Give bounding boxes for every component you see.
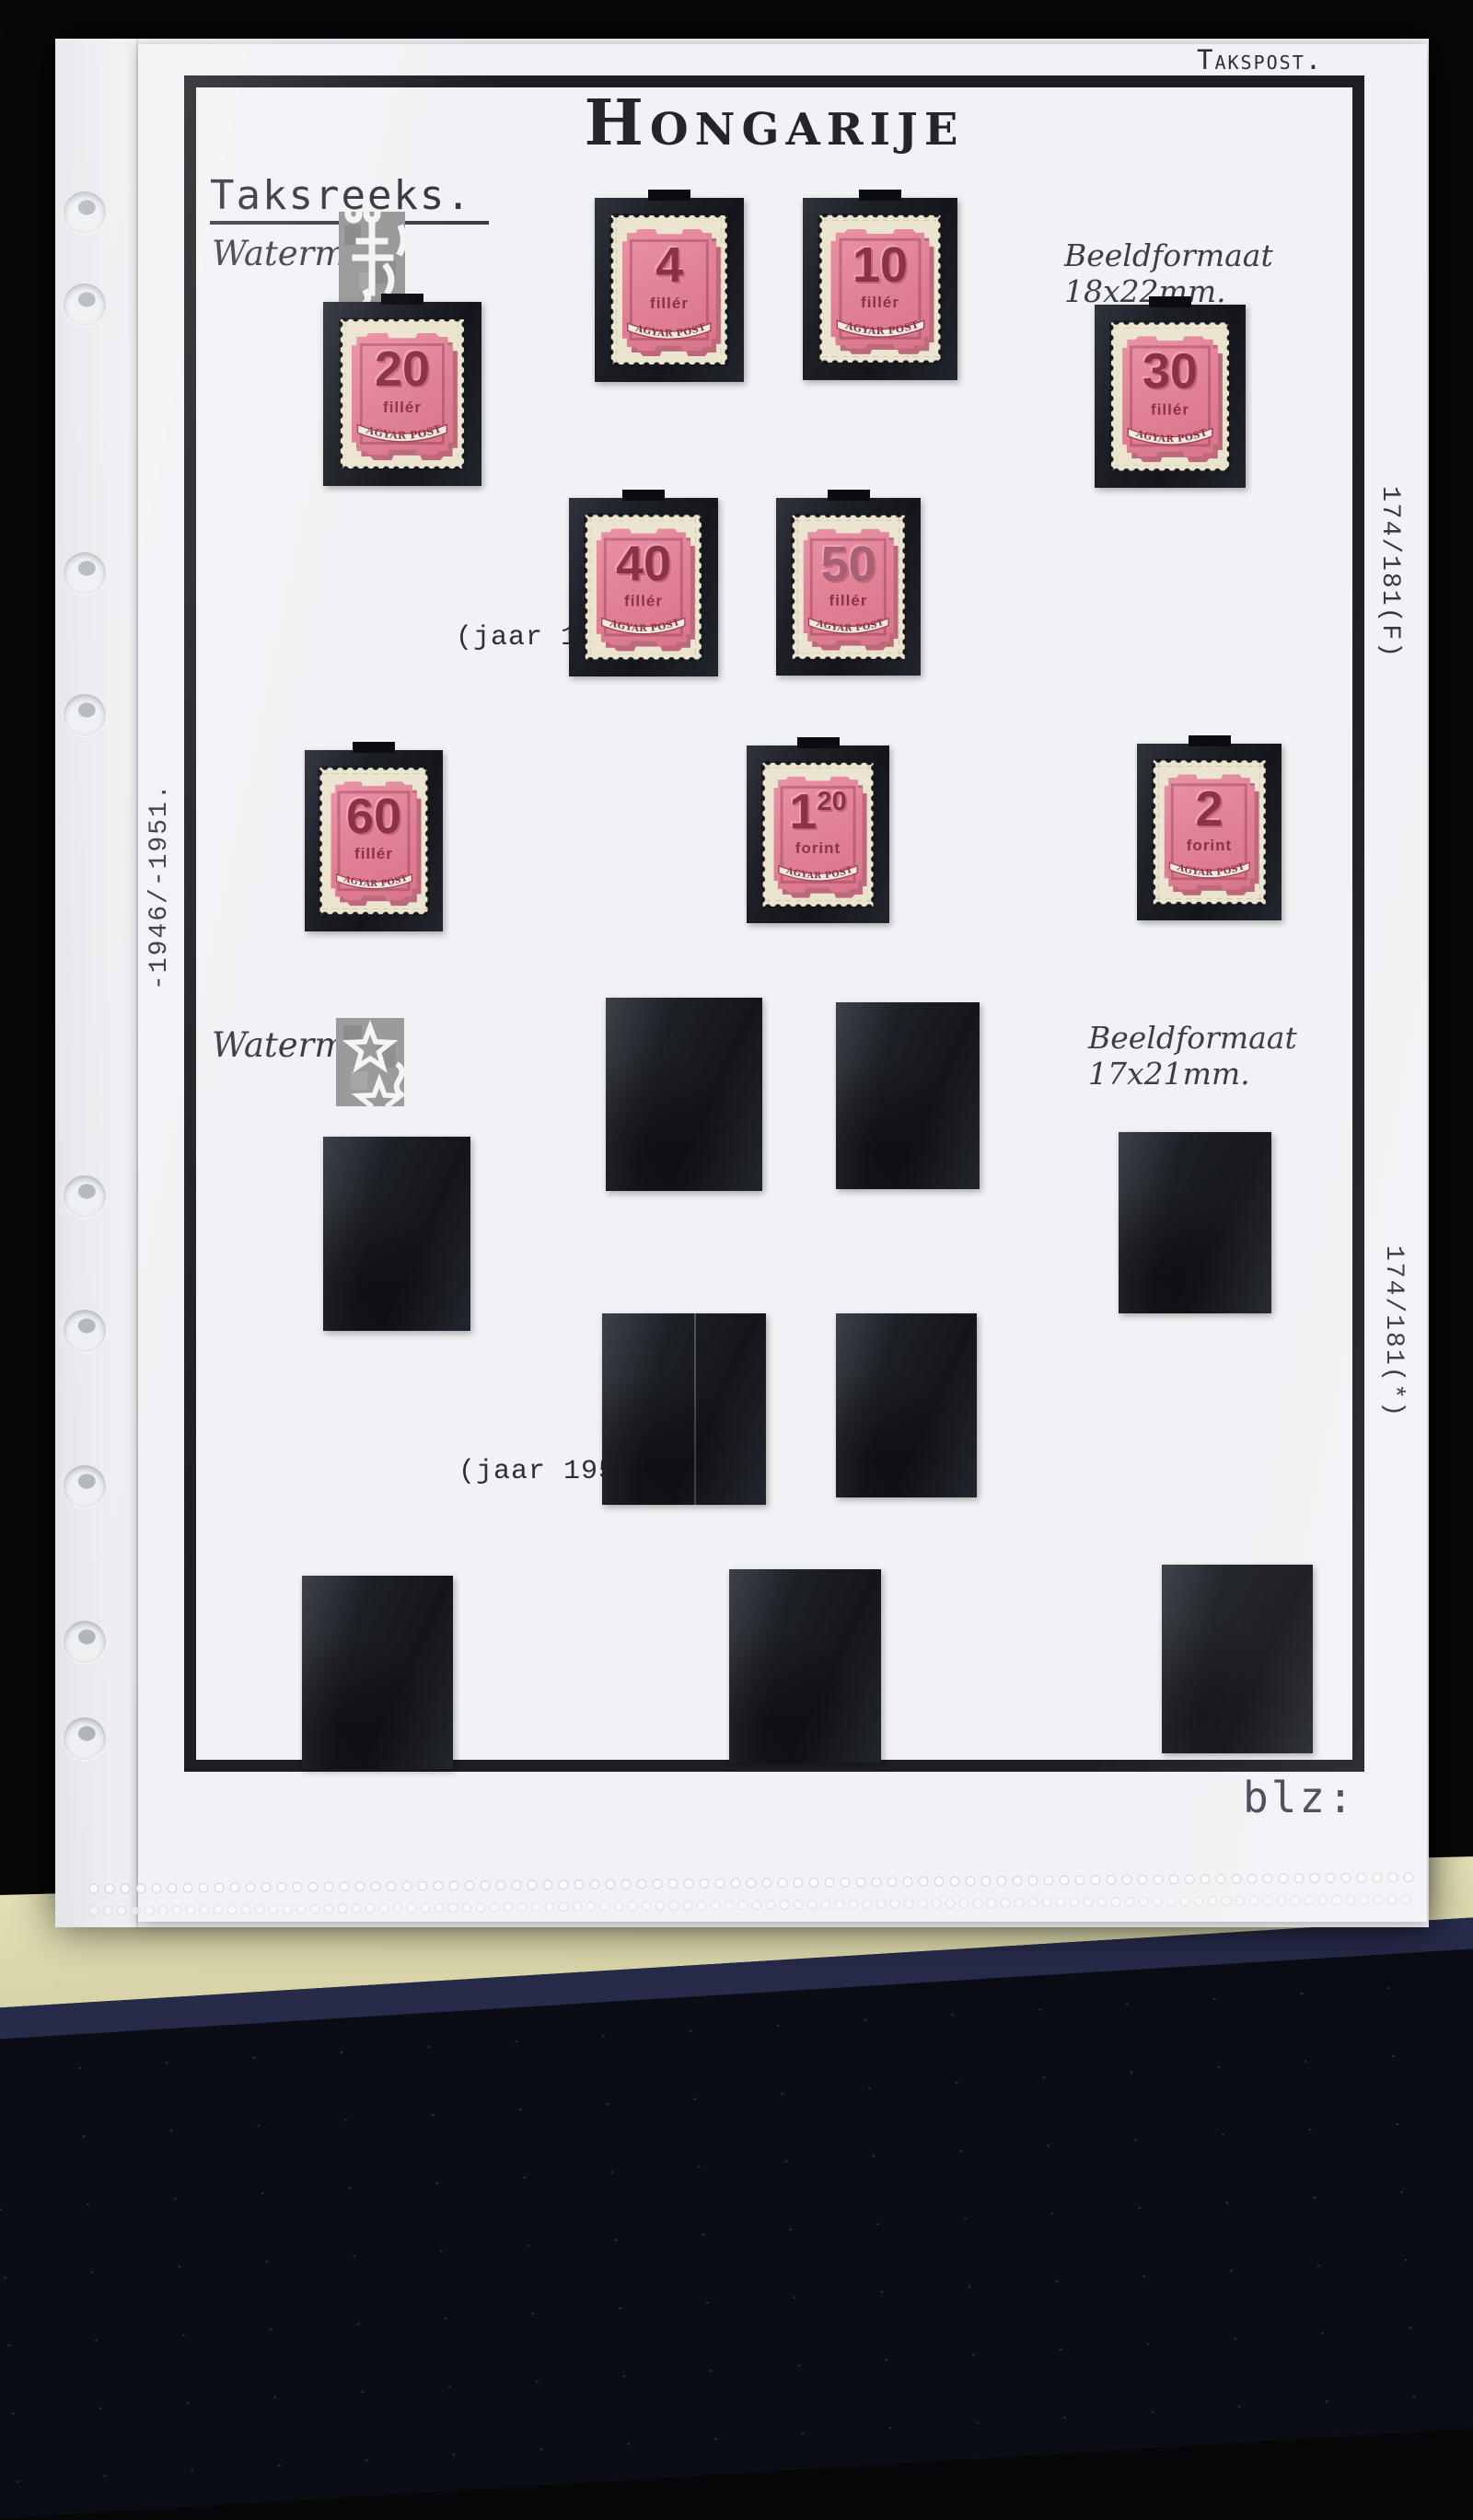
empty-stamp-mount <box>836 1002 980 1189</box>
mount-tab <box>797 737 840 748</box>
format-note-2: Beeldformaat 17x21mm. <box>1088 1020 1427 1092</box>
mount-overlap-seam <box>694 1313 696 1505</box>
empty-stamp-mount <box>602 1313 766 1505</box>
double-cross-watermark-swatch <box>339 212 405 304</box>
mount-tab <box>859 190 901 201</box>
empty-stamp-mount <box>606 998 762 1191</box>
magyar-posta-ribbon: MAGYAR POSTA <box>1124 424 1216 450</box>
navy-fabric-background <box>0 1911 1473 2520</box>
stamp-paper: 60 fillér MAGYAR POSTA <box>320 768 428 915</box>
empty-stamp-mount <box>302 1576 453 1769</box>
magyar-posta-ribbon: MAGYAR POSTA <box>833 317 928 343</box>
page-number-label: blz: <box>1243 1773 1356 1822</box>
magyar-posta-ribbon: MAGYAR POSTA <box>624 319 714 345</box>
photo-of-stamp-album-page: { "photo": { "background_color": "#07070… <box>0 0 1473 2189</box>
stamp-unit: fillér <box>622 295 716 313</box>
side-label-years: -1946/-1951. <box>145 779 174 990</box>
mount-tab <box>381 294 423 305</box>
stamp-mount-60-filler: 60 fillér MAGYAR POSTA <box>305 750 443 931</box>
stamp-unit: forint <box>1164 837 1254 855</box>
magyar-posta-ribbon: MAGYAR POSTA <box>598 614 689 640</box>
stamp-paper: 30 fillér MAGYAR POSTA <box>1111 322 1229 470</box>
stamp-mount-2-forint: 2 forint MAGYAR POSTA <box>1137 744 1282 920</box>
magyar-posta-ribbon: MAGYAR POSTA <box>1166 860 1253 884</box>
empty-stamp-mount <box>1119 1132 1271 1313</box>
plastic-sheet-protector: Takspost. Hongarije Taksreeks. Watermerk… <box>55 39 1429 1927</box>
mount-tab <box>353 742 395 753</box>
stamp-mount-40-filler: 40 fillér MAGYAR POSTA <box>569 498 718 676</box>
album-page: Takspost. Hongarije Taksreeks. Watermerk… <box>138 44 1427 1922</box>
stamp-mount-4-filler: 4 fillér MAGYAR POSTA <box>595 198 744 382</box>
stamp-value: 4 <box>622 240 716 290</box>
binder-hole <box>64 1717 106 1760</box>
page-title: Hongarije <box>184 87 1364 160</box>
stamp-value: 120 <box>773 787 863 837</box>
stamp-paper: 4 fillér MAGYAR POSTA <box>611 215 727 364</box>
binder-hole <box>64 191 106 234</box>
stamp-unit: fillér <box>830 294 929 312</box>
magyar-posta-ribbon: MAGYAR POSTA <box>775 862 861 886</box>
empty-stamp-mount <box>323 1137 470 1331</box>
empty-stamp-mount <box>729 1569 881 1763</box>
stamp-paper: 50 fillér MAGYAR POSTA <box>792 514 904 658</box>
stamp-paper: 40 fillér MAGYAR POSTA <box>586 514 702 659</box>
mount-tab <box>1149 296 1191 307</box>
stamp-mount-20-filler: 20 fillér MAGYAR POSTA <box>323 302 481 486</box>
format-note-1: Beeldformaat 18x22mm. <box>1064 237 1427 309</box>
mount-tab <box>828 490 870 501</box>
binder-hole <box>64 1175 106 1218</box>
stamp-unit: fillér <box>597 592 690 610</box>
side-label-catalog-1: 174/181(F) <box>1375 486 1404 679</box>
stamp-paper: 10 fillér MAGYAR POSTA <box>819 215 940 363</box>
magyar-posta-ribbon: MAGYAR POSTA <box>332 872 414 895</box>
binder-hole <box>64 283 106 326</box>
binder-hole <box>64 1465 106 1508</box>
magyar-posta-ribbon: MAGYAR POSTA <box>805 615 892 640</box>
stamp-paper: 120 forint MAGYAR POSTA <box>762 762 874 906</box>
stamp-unit: fillér <box>803 592 893 610</box>
magyar-posta-ribbon: MAGYAR POSTA <box>354 421 451 448</box>
stamp-value: 20 <box>352 344 453 394</box>
stamp-unit: fillér <box>352 399 453 417</box>
stamp-unit: forint <box>773 839 863 858</box>
star-watermark-swatch <box>336 1018 404 1106</box>
binder-hole <box>64 552 106 595</box>
mount-tab <box>622 490 665 501</box>
side-label-catalog-2: 174/181(*) <box>1379 1245 1408 1439</box>
empty-stamp-mount <box>836 1313 977 1497</box>
stamp-value: 10 <box>830 240 929 290</box>
stamp-unit: fillér <box>1122 401 1218 420</box>
stamp-value: 50 <box>803 539 893 589</box>
stamp-paper: 2 forint MAGYAR POSTA <box>1153 760 1265 904</box>
stamp-value: 60 <box>331 792 417 841</box>
stamp-mount-1-20-forint: 120 forint MAGYAR POSTA <box>747 746 889 923</box>
stamp-value: 30 <box>1122 347 1218 397</box>
binder-hole <box>64 694 106 736</box>
stamp-value: 2 <box>1164 785 1254 835</box>
stamp-value: 40 <box>597 539 690 589</box>
corner-label: Takspost. <box>1197 45 1323 75</box>
mount-tab <box>648 190 690 201</box>
stamp-mount-10-filler: 10 fillér MAGYAR POSTA <box>803 198 957 380</box>
empty-stamp-mount <box>1162 1565 1313 1753</box>
mount-tab <box>1189 735 1231 746</box>
stamp-mount-50-filler: 50 fillér MAGYAR POSTA <box>776 498 921 676</box>
stamp-paper: 20 fillér MAGYAR POSTA <box>341 319 464 468</box>
binder-hole <box>64 1310 106 1352</box>
binder-hole <box>64 1621 106 1663</box>
stamp-mount-30-filler: 30 fillér MAGYAR POSTA <box>1095 305 1246 488</box>
stamp-unit: fillér <box>331 846 417 864</box>
